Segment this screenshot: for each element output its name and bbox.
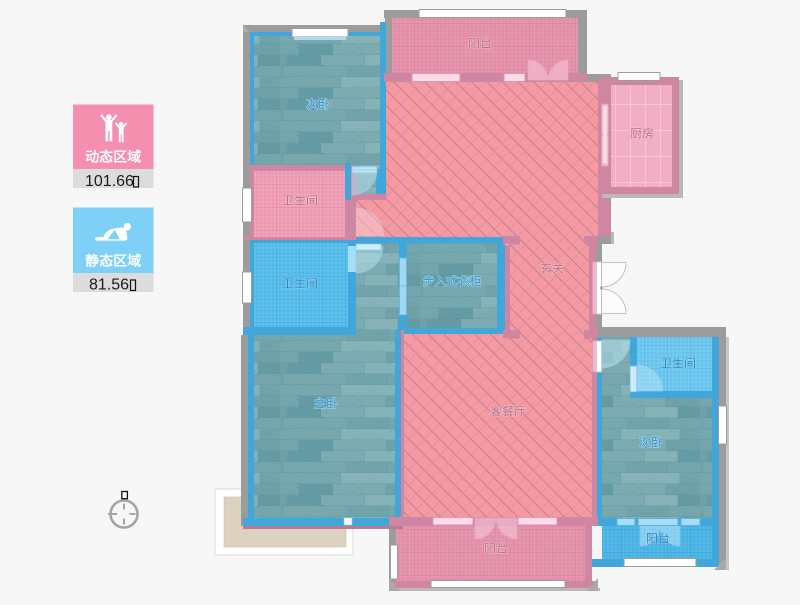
svg-text:101.66: 101.66 xyxy=(85,173,134,190)
svg-text:81.56: 81.56 xyxy=(89,277,129,294)
